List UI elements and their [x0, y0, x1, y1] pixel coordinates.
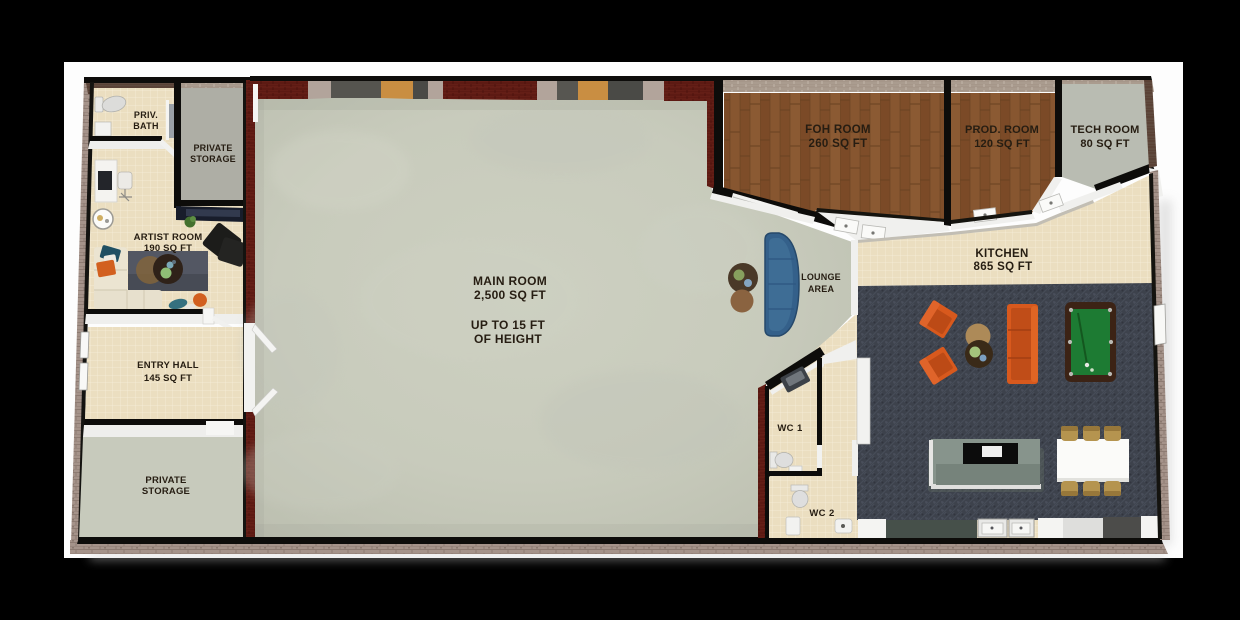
svg-text:260 SQ FT: 260 SQ FT [809, 138, 868, 150]
svg-text:120 SQ FT: 120 SQ FT [974, 138, 1030, 150]
svg-text:145 SQ FT: 145 SQ FT [144, 373, 192, 384]
svg-text:WC 1: WC 1 [777, 423, 803, 434]
svg-text:TECH ROOM: TECH ROOM [1070, 124, 1139, 136]
svg-text:2,500 SQ FT: 2,500 SQ FT [474, 288, 546, 302]
svg-text:KITCHEN: KITCHEN [975, 248, 1028, 260]
svg-text:OF HEIGHT: OF HEIGHT [474, 332, 542, 346]
svg-text:STORAGE: STORAGE [142, 486, 190, 497]
svg-text:AREA: AREA [808, 284, 835, 294]
svg-text:WC 2: WC 2 [809, 508, 834, 519]
svg-text:PROD. ROOM: PROD. ROOM [965, 124, 1039, 136]
svg-text:190 SQ FT: 190 SQ FT [144, 243, 192, 254]
svg-text:80 SQ FT: 80 SQ FT [1080, 138, 1129, 150]
svg-text:ARTIST ROOM: ARTIST ROOM [134, 232, 203, 243]
svg-text:FOH ROOM: FOH ROOM [805, 124, 871, 136]
svg-text:PRIVATE: PRIVATE [145, 475, 186, 486]
svg-text:PRIVATE: PRIVATE [193, 143, 232, 153]
svg-text:STORAGE: STORAGE [190, 154, 236, 164]
svg-text:LOUNGE: LOUNGE [801, 272, 841, 282]
svg-text:PRIV.: PRIV. [134, 110, 158, 120]
svg-text:MAIN ROOM: MAIN ROOM [473, 274, 547, 288]
svg-text:865 SQ FT: 865 SQ FT [974, 261, 1033, 273]
svg-text:BATH: BATH [133, 121, 159, 131]
svg-text:UP TO 15 FT: UP TO 15 FT [471, 318, 546, 332]
svg-text:ENTRY HALL: ENTRY HALL [137, 360, 199, 371]
